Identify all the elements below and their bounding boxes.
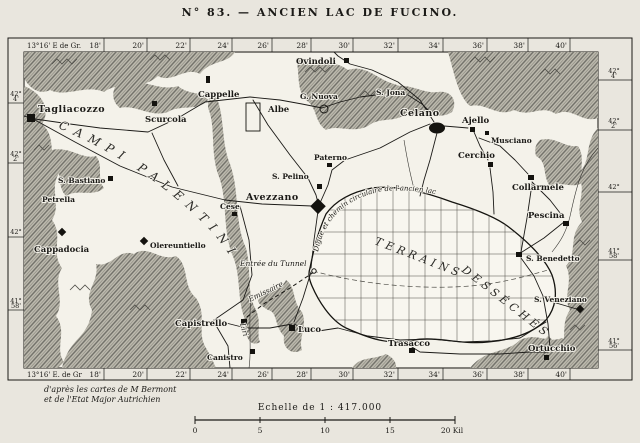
symbol-tagliacozzo (27, 114, 35, 122)
bottom-tick: 24' (217, 370, 229, 379)
label-trasacco: Trasacco (388, 339, 430, 349)
label-ovindoli: Ovindoli (296, 57, 337, 67)
top-origin-label: 13°16' E de Gr. (27, 42, 81, 50)
label-olereuntiello: Olereuntiello (150, 241, 206, 250)
bottom-tick: 30' (338, 370, 350, 379)
label-tagliacozzo: Tagliacozzo (38, 104, 105, 115)
label-entree-tunnel: Entrée du Tunnel (239, 259, 307, 268)
left-lat: 42° (10, 228, 22, 236)
symbol-pescina (563, 221, 569, 226)
map-sheet: N° 83. — ANCIEN LAC DE FUCINO. (0, 0, 640, 443)
symbol-cese (232, 212, 237, 216)
right-lat: 4' (611, 72, 617, 80)
label-scurcola: Scurcola (145, 115, 187, 125)
scale-tick: 20 Kil (441, 426, 464, 435)
scale-caption: Echelle de 1 : 417.000 (258, 403, 382, 413)
symbol-musciano (485, 131, 489, 135)
bottom-tick: 28' (296, 370, 308, 379)
scale-tick: 5 (258, 426, 263, 435)
top-tick: 32' (383, 41, 395, 50)
left-lat: 2' (13, 155, 19, 163)
top-tick: 24' (217, 41, 229, 50)
bottom-tick: 34' (428, 370, 440, 379)
top-tick: 20' (132, 41, 144, 50)
scale-tick: 10 (320, 426, 330, 435)
top-tick-labels: 18' 20' 22' 24' 26' 28' 30' 32' 34' 36' … (89, 38, 570, 52)
symbol-cerchio (488, 162, 493, 167)
label-petrella: Petrella (42, 195, 75, 204)
label-collarmele: Collarmele (512, 183, 565, 193)
bottom-tick: 18' (89, 370, 101, 379)
symbol-ajello (470, 127, 475, 132)
label-avezzano: Avezzano (245, 192, 299, 203)
symbol-s-pelino (317, 184, 322, 189)
label-canistro: Canistro (207, 353, 243, 362)
right-lat: 56' (609, 342, 619, 350)
bottom-origin-label: 13°16' E. de Gr (27, 371, 82, 379)
left-lat-labels: 42° 4' 42° 2' 42° 41° 58' (8, 90, 24, 310)
label-capistrello: Capistrello (175, 319, 228, 329)
label-ortucchio: Ortucchio (528, 344, 576, 354)
symbol-collarmele (528, 175, 534, 180)
label-paterno: Paterno (314, 153, 347, 162)
label-s-jona: S. Jona (376, 88, 405, 97)
label-celano: Celano (400, 108, 440, 119)
page-title: N° 83. — ANCIEN LAC DE FUCINO. (182, 6, 459, 19)
bottom-tick: 20' (132, 370, 144, 379)
label-cappelle: Cappelle (198, 90, 240, 100)
scale-tick: 15 (385, 426, 395, 435)
top-tick: 40' (555, 41, 567, 50)
label-s-benedetto: S. Benedetto (526, 254, 580, 263)
credits: d'après les cartes de M Bermont et de l'… (44, 385, 177, 404)
symbol-scurcola (152, 101, 157, 106)
tunnel-entrance-marker (312, 269, 316, 273)
symbol-s-bastiano (108, 176, 113, 181)
symbol-paterno (327, 163, 332, 167)
top-tick: 38' (513, 41, 525, 50)
right-lat: 58' (609, 252, 619, 260)
label-cerchio: Cerchio (458, 151, 495, 161)
symbol-canistro (250, 349, 255, 354)
label-cappadocia: Cappadocia (34, 245, 90, 255)
bottom-tick: 36' (472, 370, 484, 379)
symbol-ovindoli (344, 58, 349, 63)
top-tick: 22' (175, 41, 187, 50)
top-tick: 30' (338, 41, 350, 50)
credits-line2: et de l'Etat Major Autrichien (44, 395, 160, 404)
label-g-nuova: G. Nuova (300, 92, 338, 101)
scale-tick: 0 (193, 426, 198, 435)
bottom-tick-labels: 18' 20' 22' 24' 26' 28' 30' 32' 34' 36' … (89, 368, 570, 380)
map-canvas: N° 83. — ANCIEN LAC DE FUCINO. (0, 0, 640, 443)
label-ajello: Ajello (461, 116, 490, 126)
label-cese: Cese (220, 202, 240, 211)
label-s-pelino: S. Pelino (272, 172, 309, 181)
label-musciano: Musciano (491, 136, 532, 145)
scale-bar: Echelle de 1 : 417.000 0 5 10 15 20 Kil (193, 403, 464, 435)
top-tick: 36' (472, 41, 484, 50)
right-lat: 42° (608, 183, 620, 191)
bottom-tick: 38' (513, 370, 525, 379)
credits-line1: d'après les cartes de M Bermont (44, 385, 177, 394)
label-luco: Luco (298, 325, 321, 335)
bottom-tick: 40' (555, 370, 567, 379)
label-s-veneziano: S. Veneziano (534, 295, 587, 304)
symbol-cappelle (206, 76, 210, 83)
label-s-bastiano: S. Bastiano (58, 176, 105, 185)
label-pescina: Pescina (528, 211, 565, 221)
bottom-tick: 22' (175, 370, 187, 379)
bottom-tick: 26' (257, 370, 269, 379)
symbol-s-benedetto (516, 252, 522, 257)
top-tick: 18' (89, 41, 101, 50)
left-lat: 58' (11, 302, 21, 310)
label-albe: Albe (267, 105, 290, 115)
symbol-luco (289, 325, 295, 331)
right-lat: 2' (611, 122, 617, 130)
symbol-ortucchio (544, 355, 549, 360)
right-lat-labels: 42° 4' 42° 2' 42° 41° 58' 41° 56' (598, 67, 632, 350)
symbol-celano (429, 123, 445, 134)
top-tick: 26' (257, 41, 269, 50)
left-lat: 4' (13, 95, 19, 103)
top-tick: 34' (428, 41, 440, 50)
top-tick: 28' (296, 41, 308, 50)
bottom-tick: 32' (383, 370, 395, 379)
